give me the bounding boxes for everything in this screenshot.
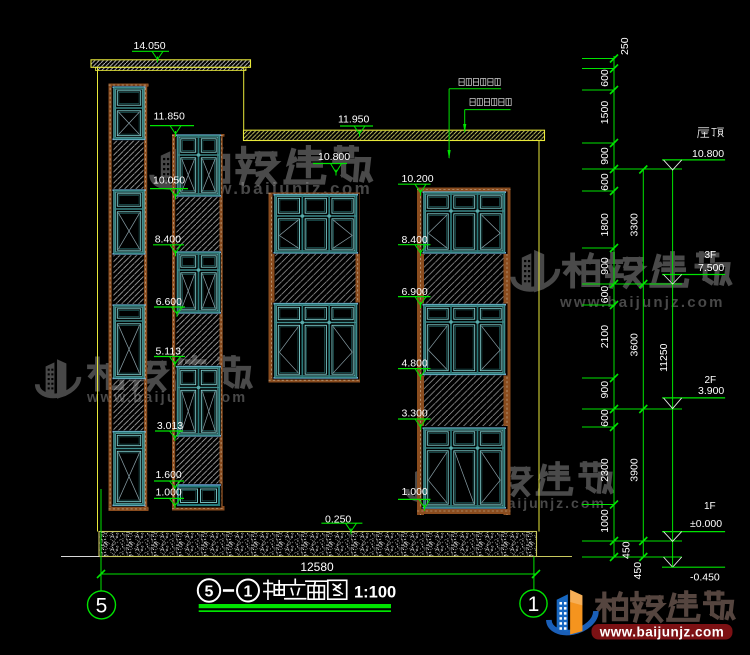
svg-text:8.400: 8.400 bbox=[155, 234, 181, 246]
svg-text:600: 600 bbox=[599, 69, 611, 87]
svg-text:5: 5 bbox=[205, 583, 214, 600]
svg-text:10.800: 10.800 bbox=[692, 148, 724, 160]
svg-text:1500: 1500 bbox=[599, 101, 611, 125]
svg-text:3.300: 3.300 bbox=[402, 408, 428, 420]
svg-text:10.800: 10.800 bbox=[318, 151, 350, 163]
svg-text:5.113: 5.113 bbox=[156, 346, 182, 358]
svg-text:-0.450: -0.450 bbox=[690, 572, 720, 584]
svg-text:1:100: 1:100 bbox=[354, 584, 396, 602]
svg-text:11.950: 11.950 bbox=[338, 114, 369, 126]
svg-text:600: 600 bbox=[599, 286, 611, 304]
svg-text:900: 900 bbox=[599, 381, 611, 399]
svg-text:6.600: 6.600 bbox=[156, 296, 182, 308]
svg-text:1F: 1F bbox=[704, 501, 716, 512]
svg-text:11250: 11250 bbox=[658, 343, 670, 372]
svg-text:www.baijunjz.com: www.baijunjz.com bbox=[559, 294, 725, 311]
svg-text:14.050: 14.050 bbox=[134, 40, 166, 52]
svg-text:7.500: 7.500 bbox=[698, 262, 724, 274]
svg-text:2300: 2300 bbox=[599, 458, 611, 482]
svg-text:10.050: 10.050 bbox=[153, 175, 185, 187]
svg-text:900: 900 bbox=[599, 257, 611, 275]
svg-text:600: 600 bbox=[599, 173, 611, 191]
svg-text:12580: 12580 bbox=[300, 560, 334, 574]
svg-text:4.800: 4.800 bbox=[402, 357, 428, 369]
svg-text:11.850: 11.850 bbox=[154, 111, 185, 123]
svg-text:www.baijunjz.com: www.baijunjz.com bbox=[599, 625, 725, 640]
svg-text:10.200: 10.200 bbox=[402, 173, 434, 185]
svg-text:600: 600 bbox=[599, 409, 611, 427]
svg-text:3.900: 3.900 bbox=[698, 385, 724, 397]
svg-text:1.000: 1.000 bbox=[156, 487, 182, 499]
svg-text:3F: 3F bbox=[705, 250, 717, 261]
svg-text:1: 1 bbox=[528, 593, 540, 616]
svg-text:1.000: 1.000 bbox=[402, 486, 428, 498]
svg-text:2100: 2100 bbox=[599, 325, 611, 349]
svg-text:3600: 3600 bbox=[629, 333, 641, 357]
svg-text:450: 450 bbox=[620, 541, 632, 559]
svg-text:1800: 1800 bbox=[599, 213, 611, 237]
svg-text:3300: 3300 bbox=[629, 213, 641, 237]
svg-text:1.600: 1.600 bbox=[156, 469, 182, 481]
svg-text:1000: 1000 bbox=[599, 509, 611, 533]
svg-text:1: 1 bbox=[244, 583, 253, 600]
svg-text:450: 450 bbox=[632, 562, 644, 580]
svg-text:250: 250 bbox=[619, 37, 631, 55]
svg-text:3.013: 3.013 bbox=[157, 420, 183, 432]
svg-text:3900: 3900 bbox=[629, 458, 641, 482]
svg-text:±0.000: ±0.000 bbox=[690, 518, 722, 530]
svg-text:5: 5 bbox=[96, 594, 108, 617]
svg-text:900: 900 bbox=[599, 147, 611, 165]
